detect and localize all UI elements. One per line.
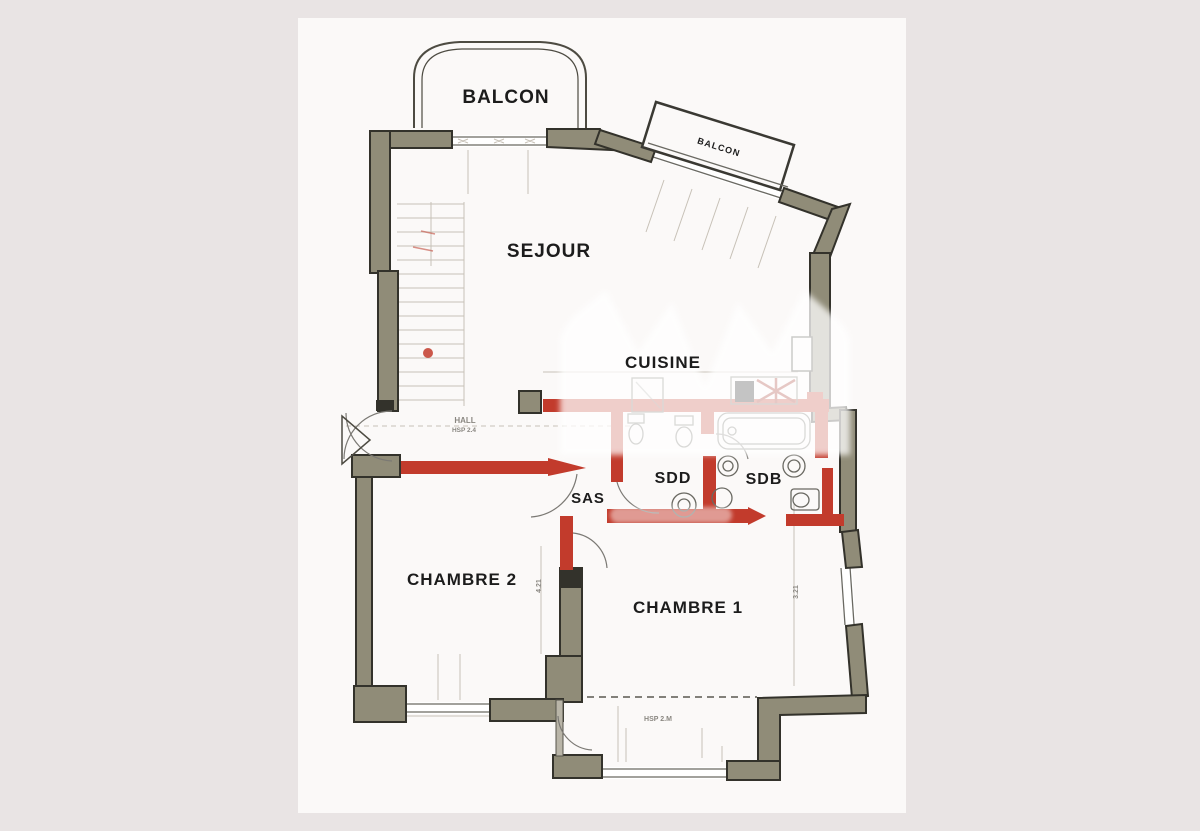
wall-bay-left-thin xyxy=(556,700,563,756)
wall-left-chambre2 xyxy=(356,474,372,688)
room-label-sas: SAS xyxy=(571,490,605,507)
wall-divider-foot xyxy=(546,656,582,702)
floorplan-drawing: BALCON BALCON SEJOUR CUISINE SDD SDB SAS… xyxy=(0,0,1200,831)
wall-left-upper xyxy=(370,131,390,273)
dimension-left: 4.21 xyxy=(536,579,543,593)
room-label-cuisine: CUISINE xyxy=(625,353,701,372)
window-chambre2 xyxy=(406,702,490,714)
wall-right-chambre1-upper xyxy=(842,530,862,568)
annotation-chambre1-height: HSP 2.M xyxy=(644,716,672,723)
door-jamb-cap xyxy=(376,400,394,411)
wall-bottom-chambre2 xyxy=(490,699,563,721)
annotation-hall-height: HSP 2.4 xyxy=(452,427,476,434)
stair-red-dot xyxy=(423,348,433,358)
wall-pier-kitchen xyxy=(519,391,541,413)
room-label-sejour: SEJOUR xyxy=(507,241,591,262)
room-label-sdd: SDD xyxy=(655,470,692,487)
room-label-hall: HALL xyxy=(454,416,475,425)
room-label-sdb: SDB xyxy=(746,471,783,488)
wall-divider-cap xyxy=(560,568,582,588)
window-top xyxy=(450,135,548,147)
floorplan-page: BALCON BALCON SEJOUR CUISINE SDD SDB SAS… xyxy=(0,0,1200,831)
room-label-chambre2: CHAMBRE 2 xyxy=(407,570,517,589)
dimension-right: 3.21 xyxy=(793,585,800,599)
wall-bay-block-left xyxy=(553,755,602,778)
wall-bay-block-right xyxy=(727,761,780,780)
red-wall-sas-chambre xyxy=(560,516,573,570)
wall-corner-chambre2 xyxy=(354,686,406,722)
red-wall-bottom-right xyxy=(786,514,844,526)
red-wall-right-lower xyxy=(822,468,833,516)
window-bay xyxy=(602,767,728,779)
wall-left-mid xyxy=(378,271,398,411)
room-label-chambre1: CHAMBRE 1 xyxy=(633,598,743,617)
room-label-balcon: BALCON xyxy=(462,87,549,108)
